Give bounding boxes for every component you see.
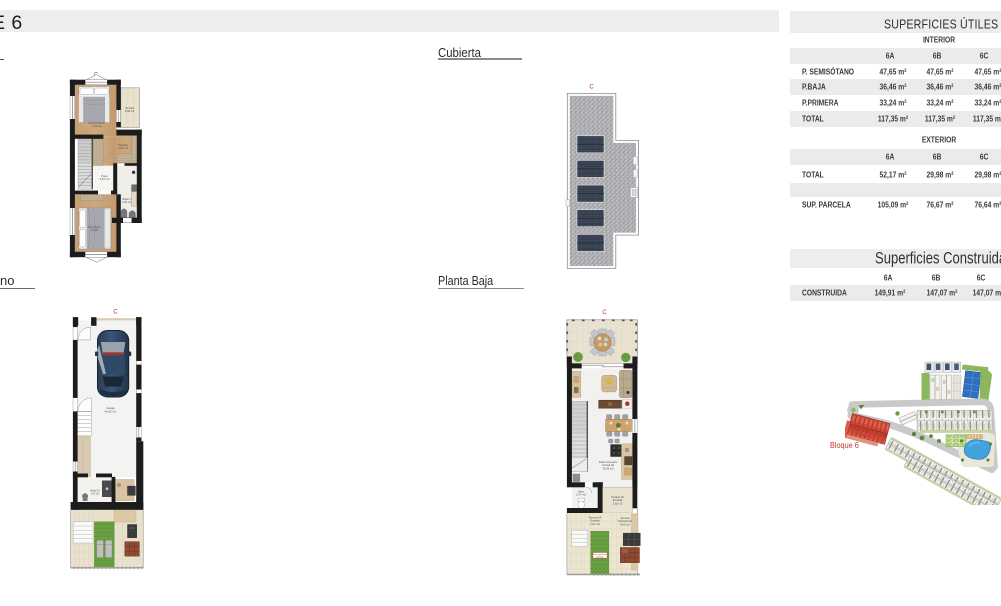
svg-text:33,99 m2: 33,99 m2 (602, 466, 614, 470)
svg-text:44,22 m2: 44,22 m2 (105, 409, 117, 413)
svg-text:6,60 m2: 6,60 m2 (620, 522, 630, 526)
svg-text:2,95 m2: 2,95 m2 (118, 146, 128, 150)
svg-text:C: C (113, 310, 118, 316)
svg-text:4,06 m2: 4,06 m2 (122, 200, 132, 204)
svg-text:2,92 m2: 2,92 m2 (613, 501, 623, 505)
svg-text:2,91 m2: 2,91 m2 (590, 522, 600, 526)
svg-text:5,06 m2: 5,06 m2 (125, 109, 135, 113)
svg-text:7,34 m2: 7,34 m2 (92, 124, 102, 128)
svg-text:(privada): (privada) (596, 555, 604, 558)
svg-text:3,87 m2: 3,87 m2 (100, 177, 110, 181)
svg-text:C: C (589, 85, 594, 91)
svg-text:1,43 m2: 1,43 m2 (91, 492, 100, 495)
svg-text:2,47 m2: 2,47 m2 (576, 493, 586, 497)
svg-text:10,02: 10,02 (91, 228, 98, 232)
svg-text:C: C (602, 310, 607, 316)
